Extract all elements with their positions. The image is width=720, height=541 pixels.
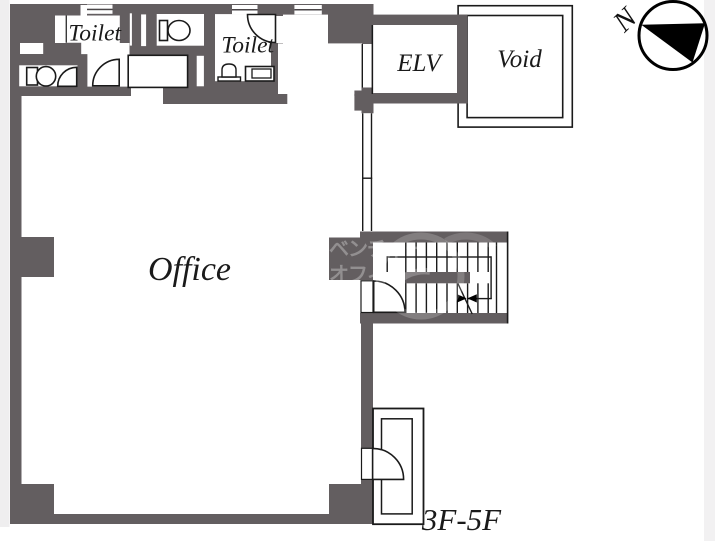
svg-text:オフィス: オフィス (329, 264, 405, 286)
svg-text:Void: Void (497, 46, 542, 73)
svg-text:Toilet: Toilet (68, 21, 121, 47)
svg-text:ベンチャー: ベンチャー (329, 239, 424, 261)
svg-text:ELV: ELV (396, 50, 443, 77)
svg-text:3F-5F: 3F-5F (421, 502, 502, 537)
svg-text:Office: Office (148, 251, 231, 288)
svg-text:Toilet: Toilet (221, 33, 274, 59)
